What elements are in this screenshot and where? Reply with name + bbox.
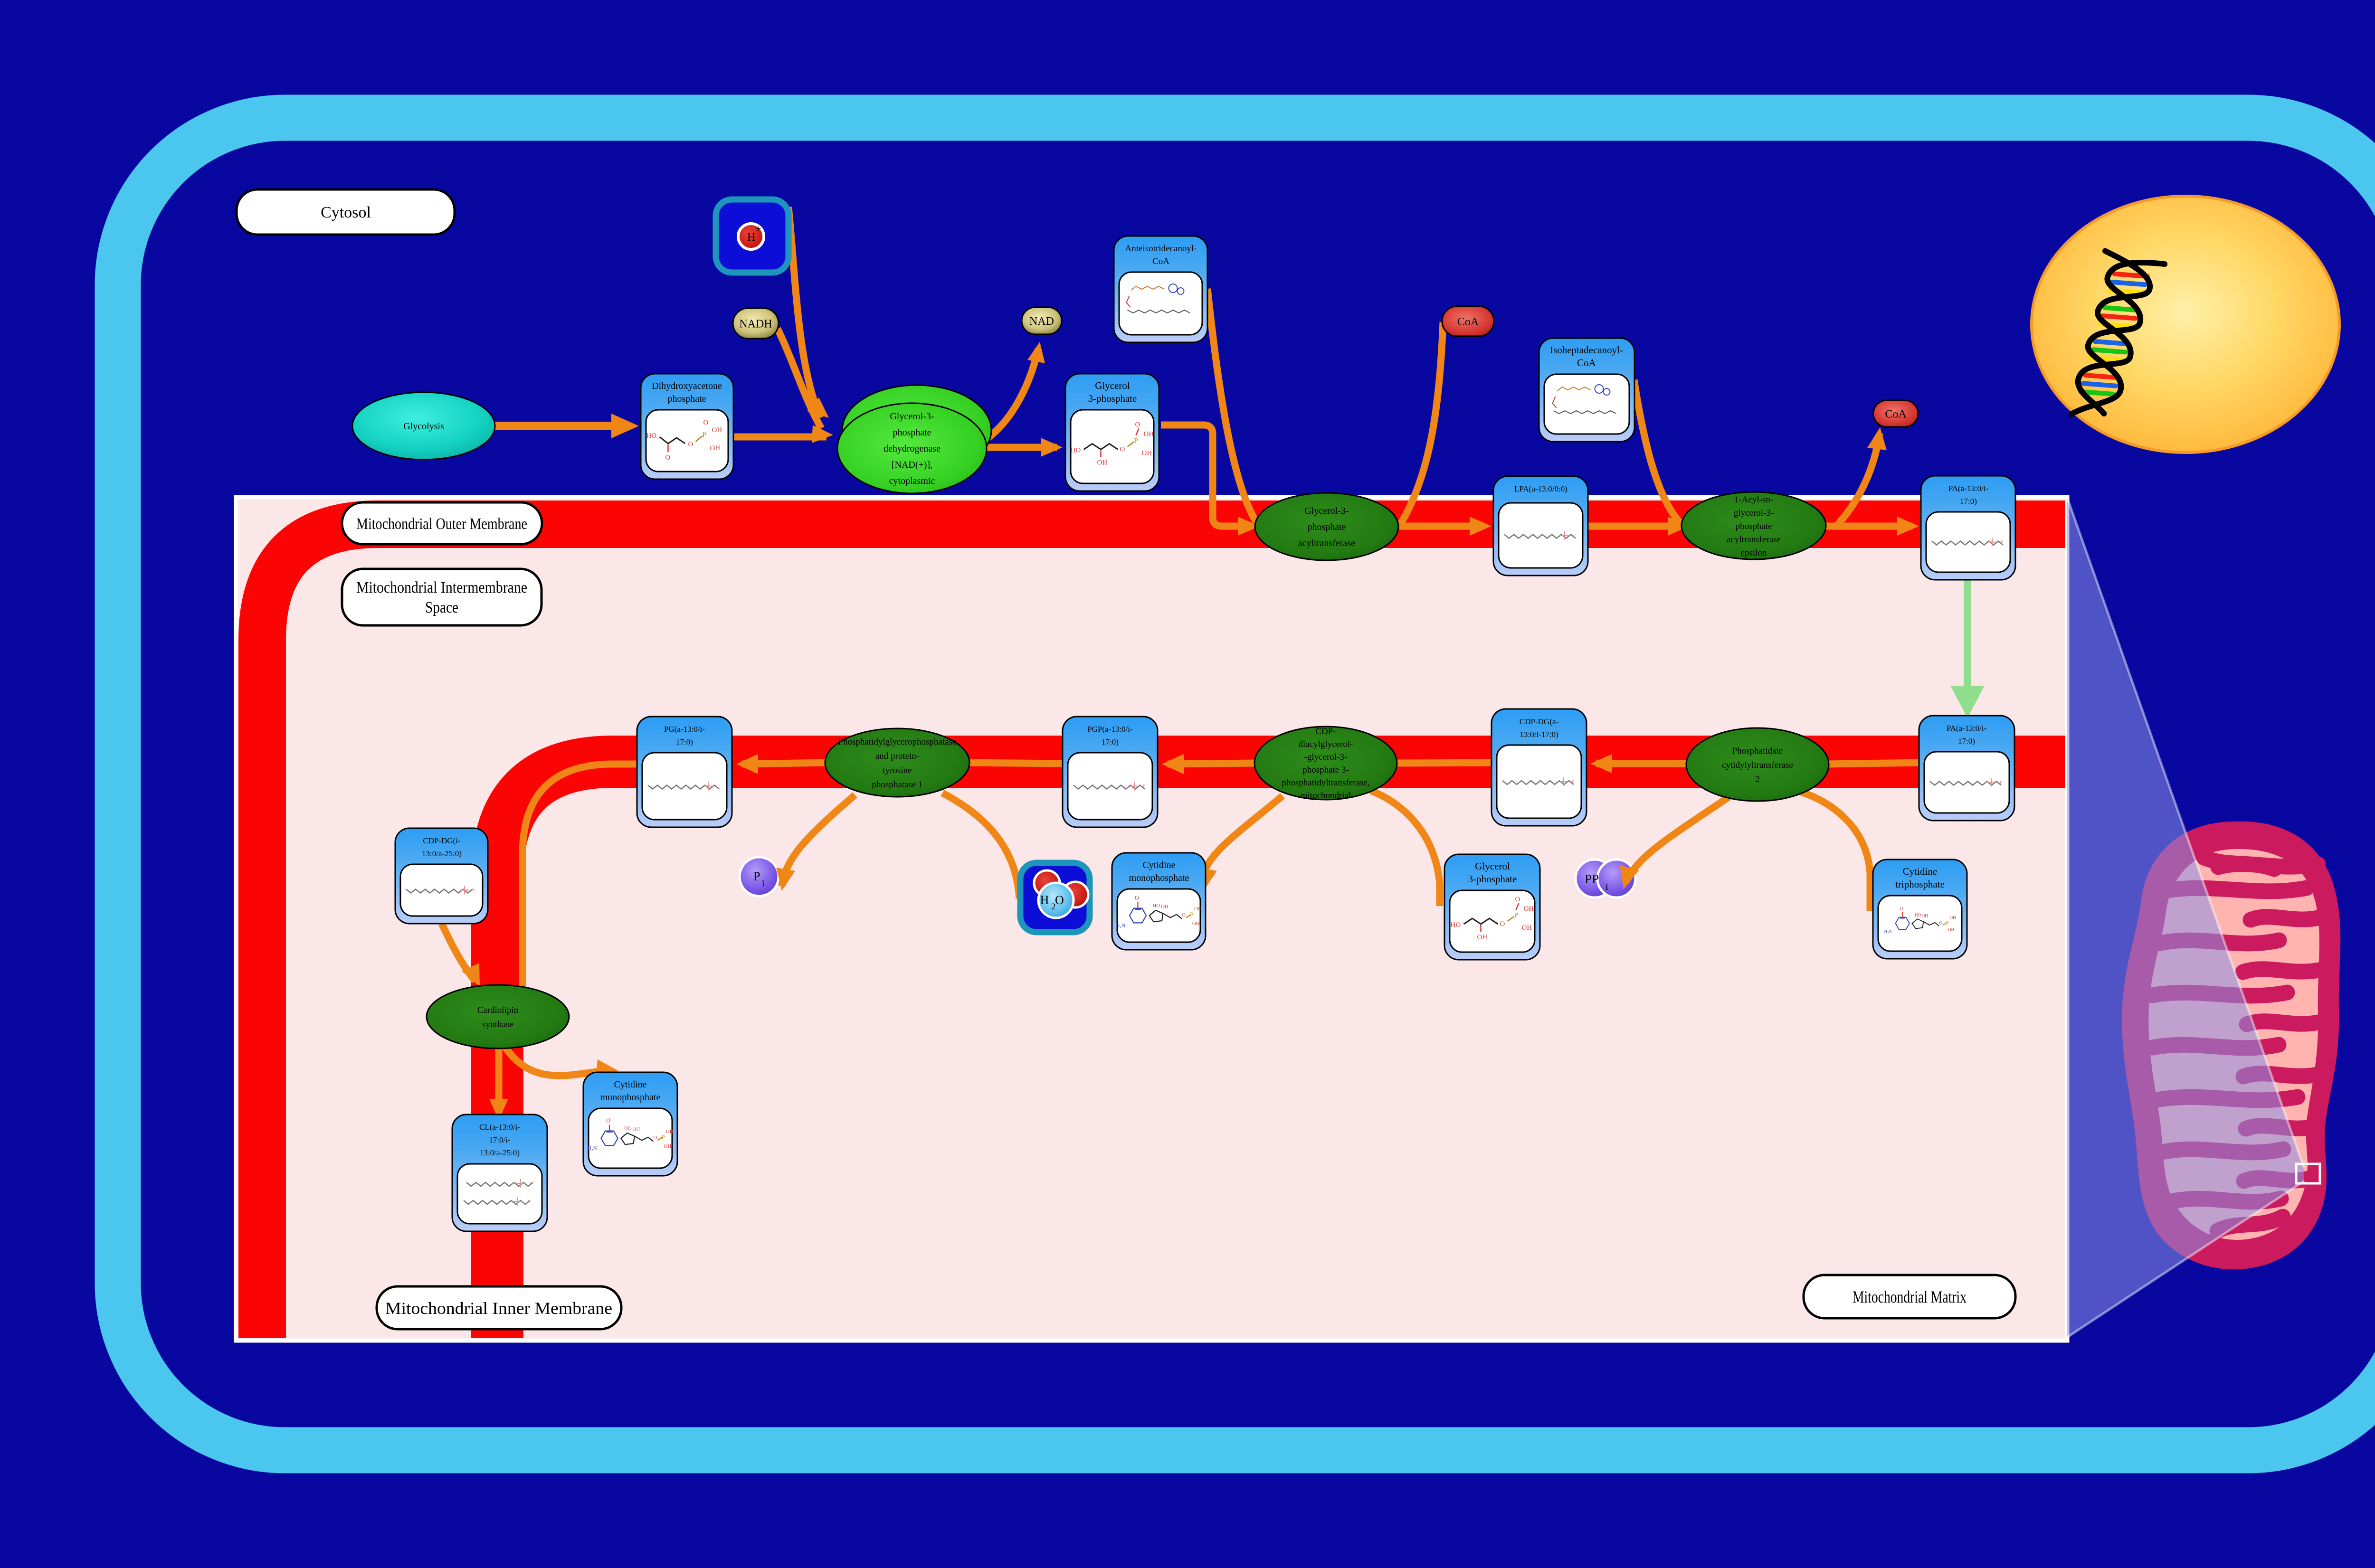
svg-text:O: O	[665, 454, 671, 462]
svg-text:Cytidine: Cytidine	[1903, 866, 1937, 877]
svg-text:O: O	[1182, 912, 1186, 918]
svg-text:OH: OH	[1144, 431, 1154, 438]
svg-text:OH: OH	[1948, 927, 1955, 932]
svg-text:P: P	[717, 784, 720, 789]
svg-text:CoA: CoA	[1152, 256, 1169, 266]
svg-text:P: P	[1190, 911, 1194, 918]
svg-text:13:0/a-25:0): 13:0/a-25:0)	[480, 1148, 520, 1157]
svg-text:13:0/i-17:0): 13:0/i-17:0)	[1520, 730, 1558, 739]
svg-text:H: H	[747, 231, 755, 244]
svg-text:Cytidine: Cytidine	[614, 1079, 647, 1090]
svg-text:-glycerol-3-: -glycerol-3-	[1304, 752, 1348, 762]
svg-text:CDP-DG(i-: CDP-DG(i-	[423, 836, 461, 845]
svg-text:17:0): 17:0)	[1102, 737, 1119, 746]
svg-text:synthase: synthase	[482, 1020, 513, 1030]
svg-text:Space: Space	[425, 599, 458, 616]
svg-text:PP: PP	[1585, 872, 1599, 886]
svg-text:phosphatase 1: phosphatase 1	[872, 780, 922, 790]
svg-text:CDP-DG(a-: CDP-DG(a-	[1520, 717, 1558, 726]
svg-text:Glycerol: Glycerol	[1095, 380, 1130, 391]
svg-text:O: O	[703, 419, 709, 426]
svg-text:Anteisotridecanoyl-: Anteisotridecanoyl-	[1125, 244, 1197, 254]
svg-text:OH: OH	[1194, 906, 1202, 912]
svg-text:Phosphatidylglycerophosphatase: Phosphatidylglycerophosphatase	[838, 737, 956, 747]
svg-text:cytidylyltransferase: cytidylyltransferase	[1722, 760, 1793, 770]
svg-text:HO: HO	[1915, 913, 1921, 917]
svg-text:Mitochondrial Matrix: Mitochondrial Matrix	[1852, 1287, 1966, 1306]
svg-text:NADH: NADH	[739, 318, 772, 330]
svg-text:Phosphatidate: Phosphatidate	[1732, 746, 1783, 756]
svg-text:CoA: CoA	[1577, 357, 1596, 368]
svg-text:HO: HO	[1071, 447, 1081, 454]
svg-text:P: P	[473, 888, 475, 893]
svg-text:diacylglycerol-: diacylglycerol-	[1298, 739, 1353, 749]
svg-text:O: O	[1055, 893, 1064, 907]
svg-text:OH: OH	[1097, 459, 1108, 467]
svg-text:i: i	[762, 878, 765, 888]
svg-text:17:0/i-: 17:0/i-	[489, 1135, 511, 1144]
svg-text:OH: OH	[710, 444, 721, 452]
svg-text:OH: OH	[666, 1129, 674, 1134]
svg-text:Glycerol-3-: Glycerol-3-	[890, 411, 934, 422]
svg-text:LPA(a-13:0/0:0): LPA(a-13:0/0:0)	[1514, 484, 1567, 493]
svg-text:P: P	[1573, 533, 1576, 538]
svg-text:dehydrogenase: dehydrogenase	[883, 444, 940, 454]
svg-text:monophosphate: monophosphate	[600, 1092, 661, 1103]
svg-text:O: O	[688, 441, 693, 448]
svg-text:13:0/a-25:0): 13:0/a-25:0)	[422, 849, 462, 858]
svg-text:and protein-: and protein-	[875, 751, 919, 761]
svg-text:acyltransferase: acyltransferase	[1298, 538, 1355, 548]
svg-text:[NAD(+)],: [NAD(+)],	[892, 460, 932, 470]
svg-text:P: P	[529, 1181, 532, 1186]
svg-text:17:0): 17:0)	[676, 737, 693, 746]
svg-text:NAD: NAD	[1029, 315, 1054, 328]
svg-text:OH: OH	[1950, 915, 1957, 920]
svg-text:OH: OH	[664, 1143, 671, 1149]
svg-text:Mitochondrial Outer Membrane: Mitochondrial Outer Membrane	[356, 515, 527, 533]
svg-text:PA(a-13:0/i-: PA(a-13:0/i-	[1948, 484, 1989, 493]
svg-text:Cardiolipin: Cardiolipin	[477, 1005, 519, 1015]
svg-text:P: P	[703, 431, 706, 439]
svg-text:epsilon: epsilon	[1741, 548, 1767, 558]
svg-text:cytoplasmic: cytoplasmic	[889, 476, 935, 486]
svg-text:OH: OH	[1922, 914, 1928, 918]
svg-text:HO: HO	[1152, 903, 1160, 908]
svg-text:P: P	[2000, 780, 2002, 785]
svg-text:Glycerol: Glycerol	[1475, 860, 1510, 872]
svg-text:H₂N: H₂N	[588, 1145, 597, 1151]
svg-text:2: 2	[1755, 775, 1760, 784]
svg-text:H: H	[1040, 893, 1049, 907]
svg-text:HO: HO	[646, 432, 657, 440]
svg-text:PA(a-13:0/i-: PA(a-13:0/i-	[1947, 724, 1987, 733]
svg-text:triphosphate: triphosphate	[1895, 878, 1945, 890]
svg-text:3-phosphate: 3-phosphate	[1088, 393, 1137, 404]
svg-text:Cytidine: Cytidine	[1143, 860, 1176, 870]
svg-text:phosphate 3-: phosphate 3-	[1302, 765, 1349, 775]
svg-text:phosphate: phosphate	[1307, 522, 1346, 532]
svg-text:Cytosol: Cytosol	[321, 204, 371, 221]
svg-text:phosphatidyltransferase,: phosphatidyltransferase,	[1282, 778, 1369, 788]
svg-text:OH: OH	[1524, 905, 1534, 913]
svg-text:OH: OH	[1477, 934, 1488, 941]
svg-text:PGP(a-13:0/i-: PGP(a-13:0/i-	[1087, 725, 1133, 734]
svg-text:P: P	[2001, 540, 2003, 545]
svg-text:Glycolysis: Glycolysis	[403, 421, 444, 432]
svg-text:Mitochondrial Intermembrane: Mitochondrial Intermembrane	[356, 579, 527, 596]
svg-text:P: P	[753, 869, 760, 883]
svg-text:CoA: CoA	[1457, 316, 1479, 328]
svg-text:mitochondrial: mitochondrial	[1301, 791, 1351, 801]
svg-text:Mitochondrial Inner Membrane: Mitochondrial Inner Membrane	[385, 1299, 612, 1318]
svg-text:phosphate: phosphate	[1735, 521, 1772, 531]
svg-text:O: O	[1900, 907, 1903, 912]
svg-text:phosphate: phosphate	[667, 394, 706, 404]
svg-text:17:0): 17:0)	[1960, 497, 1977, 506]
svg-text:tyrosine: tyrosine	[883, 765, 912, 775]
svg-text:Dihydroxyacetone: Dihydroxyacetone	[652, 381, 722, 391]
svg-text:O: O	[1135, 421, 1140, 429]
svg-text:Isoheptadecanoyl-: Isoheptadecanoyl-	[1550, 344, 1623, 356]
svg-text:OH: OH	[1522, 924, 1532, 932]
svg-text:17:0): 17:0)	[1958, 737, 1975, 746]
svg-text:glycerol-3-: glycerol-3-	[1734, 508, 1774, 518]
svg-text:3-phosphate: 3-phosphate	[1468, 873, 1517, 885]
svg-text:P: P	[1514, 912, 1518, 919]
svg-text:H₂N: H₂N	[1884, 929, 1892, 934]
svg-text:O: O	[1500, 920, 1505, 928]
svg-text:OH: OH	[1142, 450, 1152, 457]
svg-text:OH: OH	[1161, 904, 1168, 910]
svg-text:HO: HO	[624, 1125, 632, 1131]
svg-text:monophosphate: monophosphate	[1129, 873, 1189, 883]
svg-text:i: i	[1605, 882, 1608, 892]
svg-text:O: O	[1515, 896, 1520, 903]
svg-text:O: O	[653, 1135, 657, 1141]
svg-text:HO: HO	[1451, 921, 1461, 929]
svg-text:CoA: CoA	[1885, 408, 1907, 420]
svg-text:P: P	[526, 1199, 529, 1204]
svg-text:P: P	[662, 1134, 665, 1141]
svg-text:O: O	[1135, 895, 1139, 901]
svg-text:P: P	[1134, 437, 1138, 445]
svg-text:+: +	[755, 223, 761, 235]
svg-text:phosphate: phosphate	[893, 427, 931, 438]
svg-text:O: O	[606, 1117, 610, 1124]
svg-text:P: P	[1946, 920, 1949, 926]
svg-text:OH: OH	[712, 426, 722, 434]
svg-text:acyltransferase: acyltransferase	[1727, 535, 1781, 545]
svg-text:OH: OH	[1192, 921, 1200, 926]
svg-text:H₂N: H₂N	[1116, 923, 1125, 928]
svg-text:1-Acyl-sn-: 1-Acyl-sn-	[1734, 495, 1773, 505]
svg-text:O: O	[1939, 920, 1942, 925]
svg-text:CL(a-13:0/i-: CL(a-13:0/i-	[479, 1123, 520, 1132]
svg-text:P: P	[1143, 784, 1145, 789]
svg-text:PG(a-13:0/i-: PG(a-13:0/i-	[664, 725, 705, 734]
svg-text:P: P	[1572, 779, 1574, 784]
svg-text:O: O	[1120, 446, 1125, 453]
svg-text:OH: OH	[632, 1127, 640, 1133]
svg-text:CDP-: CDP-	[1315, 727, 1336, 737]
svg-text:Glycerol-3-: Glycerol-3-	[1304, 506, 1349, 516]
